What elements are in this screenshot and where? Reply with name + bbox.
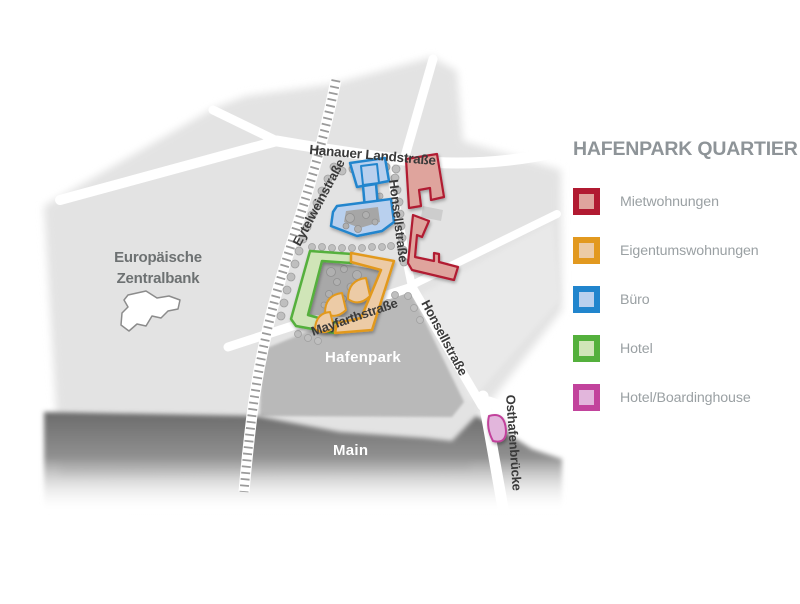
legend-item-buero: Büro (573, 286, 799, 313)
area-label-main: Main (333, 442, 368, 459)
legend-swatch-mietwohnungen (573, 188, 600, 215)
legend-label-buero: Büro (620, 292, 650, 308)
building-boardinghouse (488, 415, 506, 442)
legend: HAFENPARK QUARTIER Mietwohnungen Eigentu… (573, 138, 799, 433)
legend-title: HAFENPARK QUARTIER (573, 138, 799, 161)
legend-swatch-eigentumswohnungen (573, 237, 600, 264)
legend-item-mietwohnungen: Mietwohnungen (573, 188, 799, 215)
legend-item-boardinghouse: Hotel/Boardinghouse (573, 384, 799, 411)
building-buero-north-core (361, 164, 379, 185)
ecb-label-line2: Zentralbank (117, 270, 201, 287)
legend-swatch-buero (573, 286, 600, 313)
ecb-label-line1: Europäische (114, 249, 202, 266)
legend-item-hotel: Hotel (573, 335, 799, 362)
area-label-hafenpark: Hafenpark (325, 349, 401, 366)
legend-item-eigentumswohnungen: Eigentumswohnungen (573, 237, 799, 264)
legend-swatch-hotel (573, 335, 600, 362)
legend-label-boardinghouse: Hotel/Boardinghouse (620, 390, 751, 406)
legend-swatch-boardinghouse (573, 384, 600, 411)
legend-label-hotel: Hotel (620, 341, 653, 357)
legend-label-eigentumswohnungen: Eigentumswohnungen (620, 243, 759, 259)
legend-label-mietwohnungen: Mietwohnungen (620, 194, 719, 210)
page: Hanauer Landstraße Eytelweinstraße Honse… (0, 0, 800, 599)
